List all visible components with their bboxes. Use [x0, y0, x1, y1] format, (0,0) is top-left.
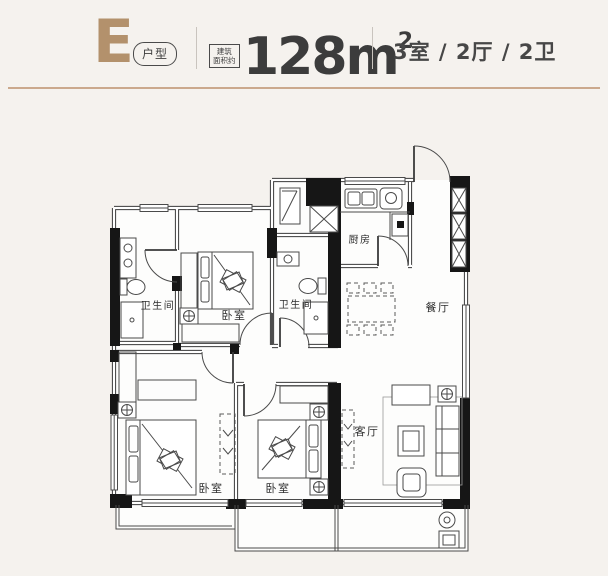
bay-floor [116, 505, 235, 529]
label-dining: 餐厅 [426, 300, 451, 314]
label-bathroom-left: 卫生间 [141, 299, 176, 312]
label-bedroom-bottom-left: 卧室 [199, 481, 224, 495]
entry-closet [452, 188, 466, 267]
floorplan-canvas: 卫生间 卫生间 卧室 厨房 餐厅 卧室 卧室 客厅 [0, 0, 608, 576]
label-bedroom-bottom-middle: 卧室 [266, 481, 291, 495]
label-bathroom-middle: 卫生间 [279, 298, 314, 311]
label-bedroom-top: 卧室 [222, 308, 247, 322]
floorplan-page: { "page": { "background": "#f5f2ee" }, "… [0, 0, 608, 576]
label-kitchen: 厨房 [349, 233, 372, 246]
balcony-floor [235, 505, 468, 551]
label-living: 客厅 [355, 424, 380, 438]
